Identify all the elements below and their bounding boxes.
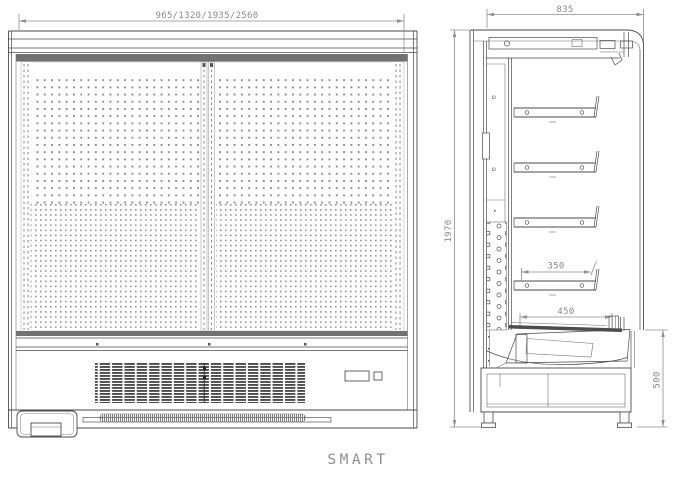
shelf-standard-center xyxy=(200,62,217,331)
shelf-1 xyxy=(514,96,599,122)
drain-strip xyxy=(83,414,331,422)
technical-drawing-page: 965/1320/1935/2560 xyxy=(0,0,680,479)
drawing-canvas: 965/1320/1935/2560 xyxy=(0,0,680,479)
side-depth-dimension-label: 835 xyxy=(556,5,573,15)
side-height-dimension-label: 1970 xyxy=(444,220,454,243)
deck-depth-dimension-label: 450 xyxy=(557,307,574,317)
air-duct-tray xyxy=(487,330,635,369)
front-base-section xyxy=(9,331,418,437)
side-base-height-dimension: 500 xyxy=(637,330,668,427)
side-view: 835 1970 500 xyxy=(444,5,668,428)
shelf-3 xyxy=(514,206,599,232)
perforated-air-column xyxy=(487,222,507,330)
product-title: SMART xyxy=(327,452,388,468)
front-view: 965/1320/1935/2560 xyxy=(9,11,418,437)
roller-blind-housing xyxy=(16,54,408,62)
front-width-dimension-label: 965/1320/1935/2560 xyxy=(156,11,259,21)
perforated-back-panel xyxy=(21,62,404,331)
shelf-depth-dimension-label: 350 xyxy=(547,262,564,272)
shelf-standard-left xyxy=(22,62,31,331)
deck-depth-dimension: 450 xyxy=(520,307,612,329)
shelf-standard-right xyxy=(394,62,403,331)
shelf-2 xyxy=(514,151,599,177)
light-fixture xyxy=(600,32,633,65)
leveling-foot xyxy=(17,411,77,437)
control-panel xyxy=(345,371,382,381)
machine-compartment xyxy=(481,368,631,412)
deck-front-dark-band xyxy=(16,331,408,336)
front-canopy xyxy=(9,31,418,62)
side-base-height-dimension-label: 500 xyxy=(653,371,663,388)
side-canopy-interior xyxy=(489,32,633,65)
front-width-dimension: 965/1320/1935/2560 xyxy=(19,11,404,30)
foot-rear xyxy=(482,412,496,428)
foot-front xyxy=(618,412,632,428)
shelf-depth-dimension: 350 xyxy=(522,261,597,281)
side-height-dimension: 1970 xyxy=(444,30,483,427)
power-switch xyxy=(374,372,382,380)
side-depth-dimension: 835 xyxy=(487,5,644,44)
ventilation-grille xyxy=(95,363,305,403)
controller-display xyxy=(345,371,369,381)
